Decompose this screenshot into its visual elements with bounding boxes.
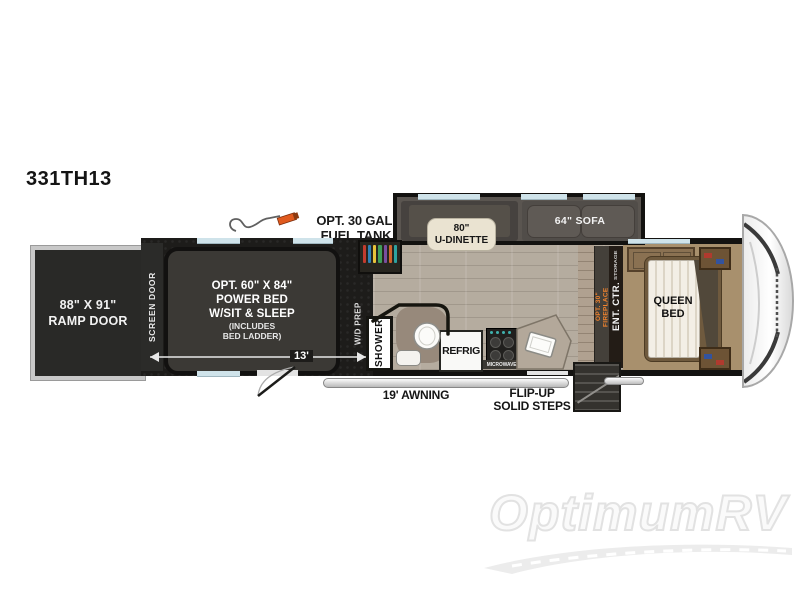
nightstand-top xyxy=(699,247,731,270)
pantry-item xyxy=(384,245,387,263)
slideout-window-3 xyxy=(583,194,635,200)
pantry-item xyxy=(378,245,381,263)
burner xyxy=(503,337,514,348)
refrigerator: REFRIG xyxy=(439,330,483,372)
steps-label: FLIP-UP SOLID STEPS xyxy=(486,387,578,412)
watermark-road-graphic xyxy=(478,538,798,574)
slideout-window-1 xyxy=(418,194,480,200)
sofa-label: 64" SOFA xyxy=(522,215,638,227)
fireplace-label-line1: OPT. 30" xyxy=(595,246,602,368)
ramp-door-label: 88" X 91" RAMP DOOR xyxy=(35,250,141,376)
queen-bed-label: QUEEN BED xyxy=(648,260,698,356)
pantry-item xyxy=(394,245,397,263)
entry-door-opening xyxy=(527,371,568,375)
watermark: OptimumRV xyxy=(478,488,798,579)
ramp-door: 88" X 91" RAMP DOOR xyxy=(31,246,145,380)
screen-door-label: SCREEN DOOR xyxy=(141,243,163,371)
power-bed: OPT. 60" X 84" POWER BED W/SIT & SLEEP (… xyxy=(164,247,340,375)
nightstand-decor xyxy=(704,354,712,359)
microwave-label-bar: MICROWAVE xyxy=(483,360,520,369)
kitchen-end-wall xyxy=(578,244,594,370)
slideout-window-2 xyxy=(521,194,567,200)
model-number: 331TH13 xyxy=(26,168,112,191)
front-cap-graphics xyxy=(744,216,794,388)
fireplace: OPT. 30" FIREPLACE xyxy=(594,246,609,368)
nightstand-decor xyxy=(716,360,724,365)
stove-knob xyxy=(502,331,505,334)
pantry-item xyxy=(368,245,371,263)
garage-door-opening xyxy=(257,370,298,376)
grab-handle xyxy=(604,377,644,385)
pantry-item xyxy=(389,245,392,263)
nightstand-decor xyxy=(704,253,712,258)
toilet xyxy=(396,350,421,366)
pantry-shelf xyxy=(358,240,402,274)
awning-bar xyxy=(323,378,569,388)
watermark-text: OptimumRV xyxy=(478,488,798,538)
wd-prep-label: W/D PREP xyxy=(349,288,367,360)
garage-window-top-2 xyxy=(293,238,333,244)
stove-knob xyxy=(496,331,499,334)
u-dinette-label: 80" U-DINETTE xyxy=(427,218,496,251)
awning-label: 19' AWNING xyxy=(352,388,480,402)
power-bed-note: (INCLUDES BED LADDER) xyxy=(223,322,282,342)
garage-length-label: 13' xyxy=(290,350,313,362)
flip-up-steps xyxy=(573,362,621,412)
fuel-nozzle-icon xyxy=(277,212,299,225)
front-cap xyxy=(742,214,794,388)
storage-label: STORAGE xyxy=(610,247,623,283)
power-bed-label: OPT. 60" X 84" POWER BED W/SIT & SLEEP xyxy=(209,280,295,321)
shower-label: SHOWER xyxy=(366,316,393,371)
microwave-label: MICROWAVE xyxy=(487,362,517,367)
bedroom-window xyxy=(628,239,690,244)
burner xyxy=(490,337,501,348)
garage-window-top-1 xyxy=(197,238,240,244)
pantry-item xyxy=(373,245,376,263)
pantry-item xyxy=(363,245,366,263)
stove-knob xyxy=(490,331,493,334)
nightstand-bottom xyxy=(699,347,731,370)
garage-window-bottom-1 xyxy=(197,371,240,377)
stove-knob xyxy=(508,331,511,334)
floorplan-page: 331TH13 88" X 91" RAMP DOOR SCREEN DOOR … xyxy=(0,0,800,600)
nightstand-decor xyxy=(716,259,724,264)
fuel-hose xyxy=(230,216,280,231)
